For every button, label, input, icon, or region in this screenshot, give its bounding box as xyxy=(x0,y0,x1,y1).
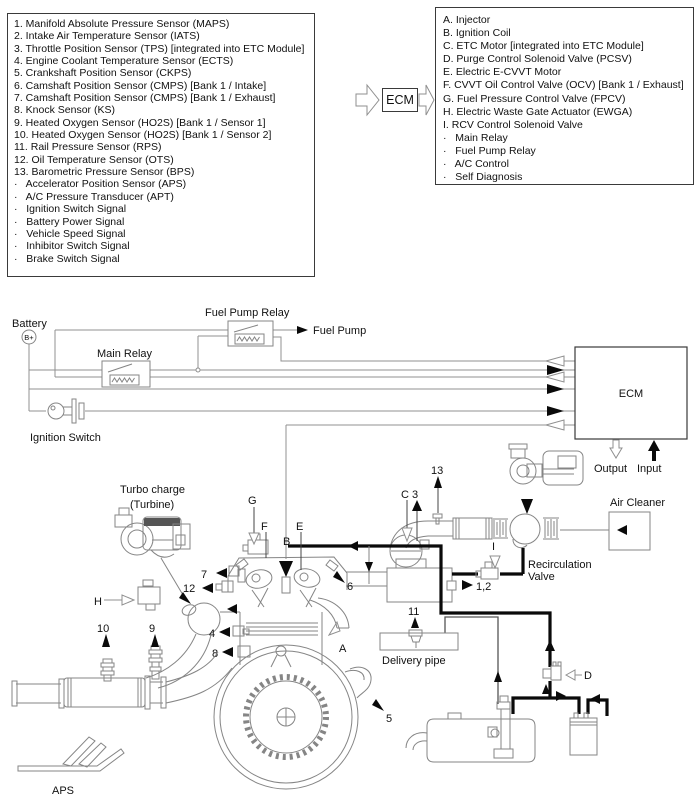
callout-7: 7 xyxy=(201,569,207,581)
ecm-input-arrow-icon xyxy=(547,384,564,394)
flow-arrow-icon xyxy=(590,694,600,704)
flow-arrow-right-icon xyxy=(356,85,379,115)
callout-10: 10 xyxy=(97,623,109,635)
airflow-arrow-icon xyxy=(617,525,627,535)
list-item: E. Electric E-CVVT Motor xyxy=(443,66,693,79)
input-label: Input xyxy=(637,463,661,475)
list-item: · Main Relay xyxy=(443,132,693,145)
ignition-switch-label: Ignition Switch xyxy=(30,432,101,444)
output-arrow-icon xyxy=(610,440,622,458)
list-item: F. CVVT Oil Control Valve (OCV) [Bank 1 … xyxy=(443,79,693,92)
evap-canister xyxy=(570,713,597,755)
callout-arrow-icon xyxy=(566,670,575,680)
recirculation-valve-label: Recirculation xyxy=(528,559,592,571)
ignition-coil-arrow-icon xyxy=(279,561,293,577)
compressor-cover xyxy=(144,518,180,526)
callout-f: F xyxy=(261,521,268,533)
ecm-output-arrow-icon xyxy=(546,420,564,430)
engine-assembly xyxy=(146,534,373,789)
battery-label: Battery xyxy=(12,318,47,330)
fuel-system: 11 Delivery pipe A xyxy=(329,606,502,704)
callout-arrow-icon xyxy=(434,476,442,488)
ecm-io-diagram-page: 1. Manifold Absolute Pressure Sensor (MA… xyxy=(0,0,700,810)
callout-arrow-icon xyxy=(151,634,159,647)
callout-arrow-icon xyxy=(412,500,422,511)
main-relay-label: Main Relay xyxy=(97,348,153,360)
callout-arrow-icon xyxy=(202,583,213,593)
flow-arrow-icon xyxy=(365,562,373,572)
callout-i: I xyxy=(492,541,495,553)
ecm-label: ECM xyxy=(619,388,643,400)
turbocharger-left: Turbo charge (Turbine) H xyxy=(94,484,191,610)
engine-schematic: B+ Battery Main Relay Fuel Pump Relay Fu… xyxy=(0,290,700,810)
callout-arrow-icon xyxy=(122,595,134,605)
fuel-tank xyxy=(406,696,535,762)
fuel-pump-relay-label: Fuel Pump Relay xyxy=(205,307,290,319)
callout-arrow-icon xyxy=(402,528,412,541)
callout-arrow-icon xyxy=(372,699,384,711)
output-label: Output xyxy=(594,463,627,475)
aps-label: APS xyxy=(52,785,74,797)
list-item: I. RCV Control Solenoid Valve xyxy=(443,119,693,132)
callout-5: 5 xyxy=(386,713,392,725)
list-item: B. Ignition Coil xyxy=(443,27,693,40)
fuel-pump-label: Fuel Pump xyxy=(313,325,366,337)
ignition-switch-symbol: Ignition Switch xyxy=(30,399,101,444)
battery-symbol: B+ Battery xyxy=(12,318,47,344)
recirculation-valve-label2: Valve xyxy=(528,571,555,583)
callout-12: 12 xyxy=(183,583,195,595)
callout-11: 11 xyxy=(408,606,419,618)
callout-b: B xyxy=(283,536,290,548)
callout-1-2: 1,2 xyxy=(476,581,491,593)
ecm-flow-label: ECM xyxy=(382,88,418,112)
list-item: D. Purge Control Solenoid Valve (PCSV) xyxy=(443,53,693,66)
callout-h: H xyxy=(94,596,102,608)
recirculation-valve: I Recirculation Valve xyxy=(476,541,592,583)
callout-9: 9 xyxy=(149,623,155,635)
callout-a: A xyxy=(339,643,347,655)
flow-arrow-icon xyxy=(494,671,502,682)
flow-arrow-icon xyxy=(348,541,358,551)
list-item: H. Electric Waste Gate Actuator (EWGA) xyxy=(443,106,693,119)
battery-terminal-label: B+ xyxy=(24,333,34,342)
delivery-pipe-label: Delivery pipe xyxy=(382,655,446,667)
list-item: · A/C Control xyxy=(443,158,693,171)
callout-13: 13 xyxy=(431,465,443,477)
fuel-pump-arrow-icon xyxy=(297,326,308,334)
intake-system: Air Cleaner xyxy=(346,497,665,602)
callout-arrow-icon xyxy=(102,634,110,647)
callout-arrow-icon xyxy=(411,617,419,628)
callout-g: G xyxy=(248,495,257,507)
flow-arrow-right-icon xyxy=(419,85,434,115)
air-cleaner-label: Air Cleaner xyxy=(610,497,665,509)
callout-d: D xyxy=(584,670,592,682)
list-item: · Fuel Pump Relay xyxy=(443,145,693,158)
list-item: · Self Diagnosis xyxy=(443,171,693,184)
list-item: G. Fuel Pressure Control Valve (FPCV) xyxy=(443,93,693,106)
maps-iats-fitting: 1,2 xyxy=(447,580,491,593)
aps-pedal: APS xyxy=(18,737,124,797)
callout-arrow-icon xyxy=(462,580,473,590)
main-relay-symbol: Main Relay xyxy=(97,348,153,387)
list-item: A. Injector xyxy=(443,14,693,27)
ecm-output-arrow-icon xyxy=(546,356,564,366)
ecm-input-arrow-icon xyxy=(547,406,564,416)
flow-arrow-icon xyxy=(545,640,555,651)
turbocharger-top xyxy=(509,444,583,514)
callout-arrow-icon xyxy=(219,627,230,637)
callout-arrow-icon xyxy=(333,571,345,583)
engine-callouts: G F E B C 3 13 7 12 4 8 6 5 xyxy=(183,465,443,725)
callout-arrow-icon xyxy=(249,533,259,544)
callout-arrow-icon xyxy=(216,568,227,578)
callout-c3: C 3 xyxy=(401,489,418,501)
exhaust-system: 10 9 xyxy=(12,623,232,709)
turbine-label: (Turbine) xyxy=(130,499,174,511)
list-item: C. ETC Motor [integrated into ETC Module… xyxy=(443,40,693,53)
ecm-outputs-list-box: A. Injector B. Ignition Coil C. ETC Moto… xyxy=(435,7,694,185)
callout-6: 6 xyxy=(347,581,353,593)
callout-4: 4 xyxy=(209,628,215,640)
callout-arrow-icon xyxy=(222,647,233,657)
fuel-pump-relay-symbol: Fuel Pump Relay Fuel Pump xyxy=(205,307,366,346)
turbo-charge-label: Turbo charge xyxy=(120,484,185,496)
input-arrow-icon xyxy=(648,440,660,461)
down-arrow-icon xyxy=(521,499,533,514)
callout-e: E xyxy=(296,521,303,533)
